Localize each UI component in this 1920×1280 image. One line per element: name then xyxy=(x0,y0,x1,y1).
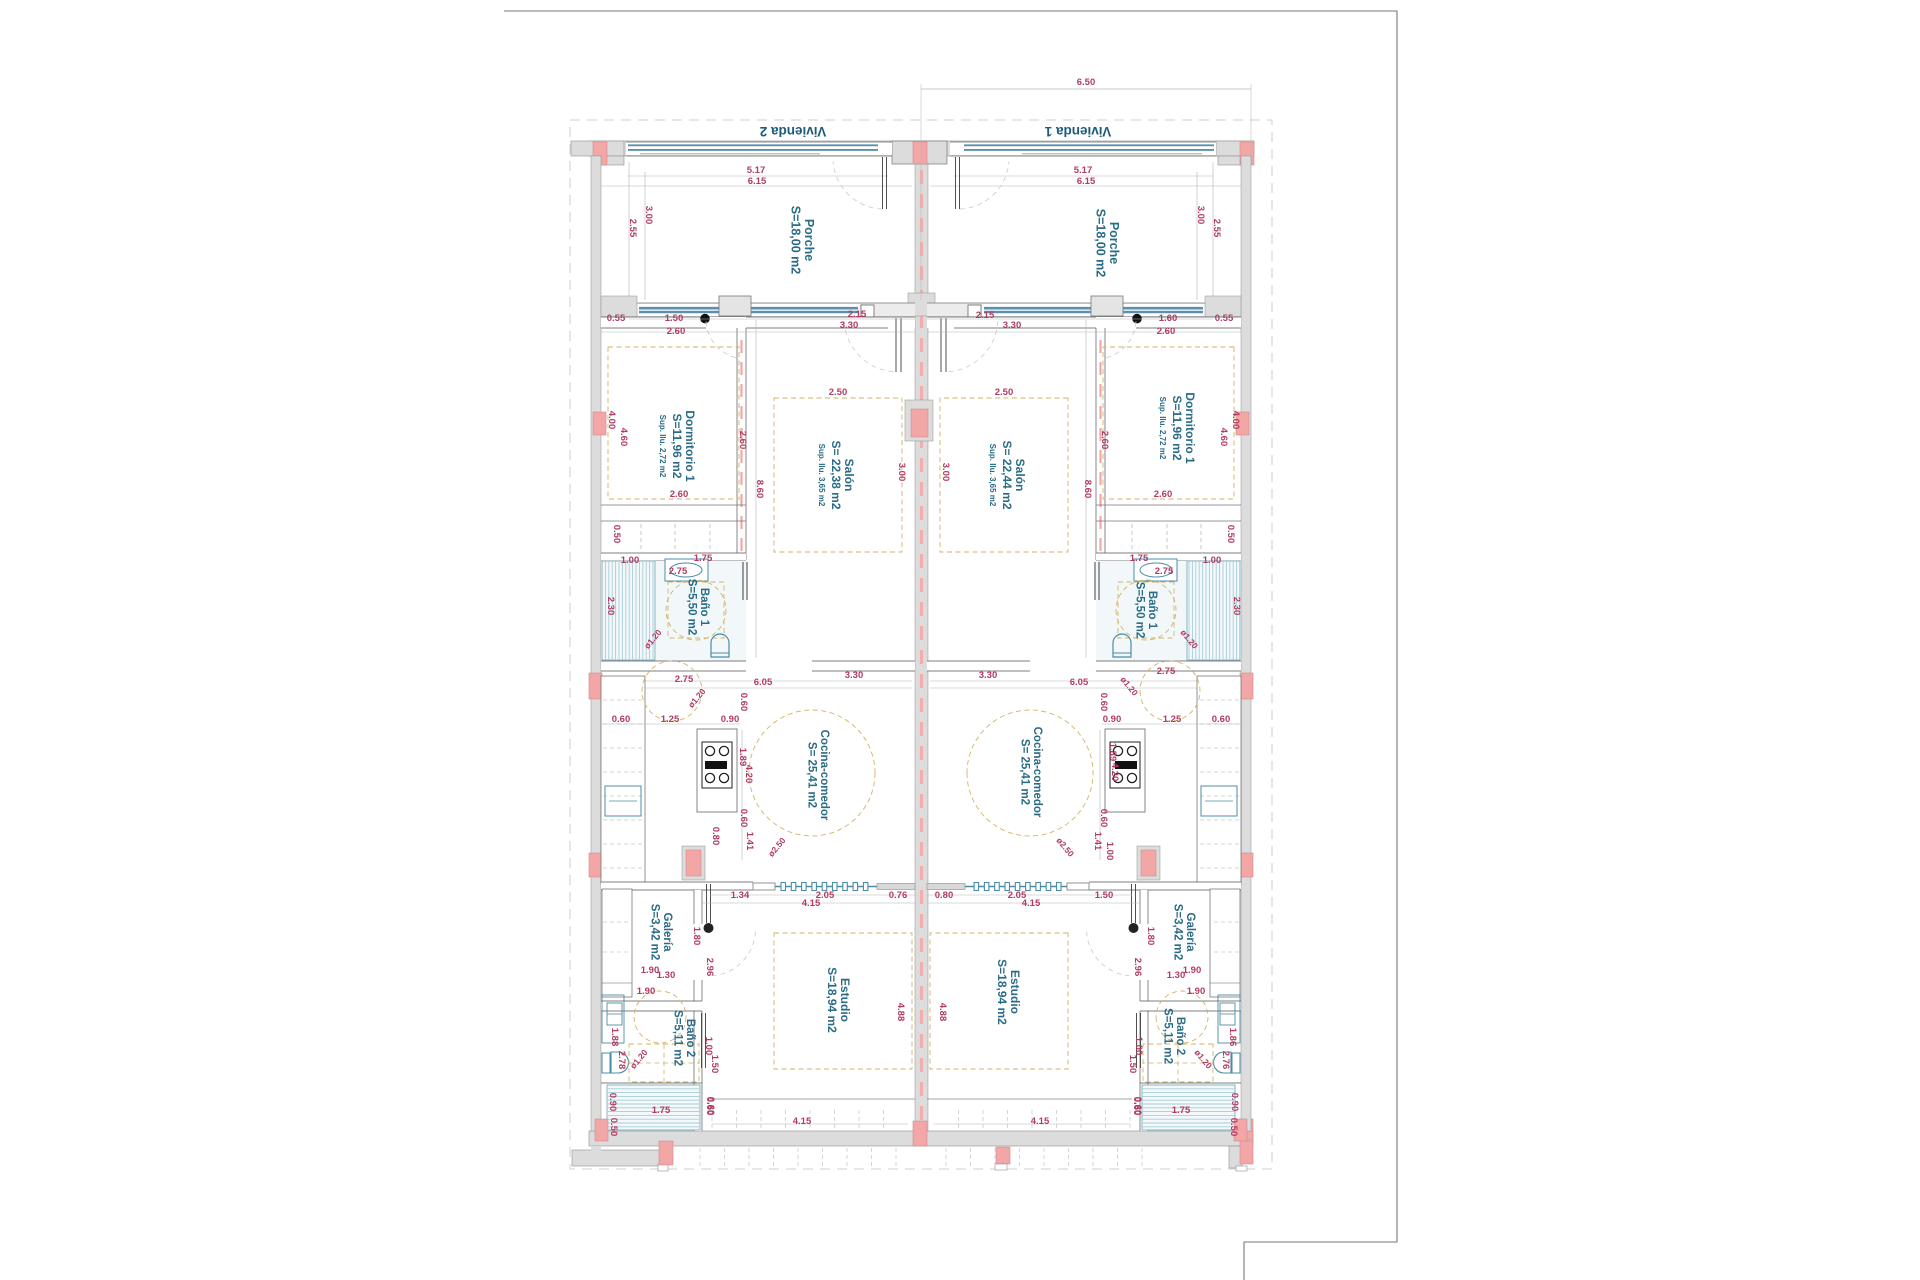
svg-text:4.00: 4.00 xyxy=(606,411,617,430)
svg-text:2.60: 2.60 xyxy=(670,489,689,500)
svg-text:Estudio: Estudio xyxy=(838,978,852,1022)
svg-text:2.75: 2.75 xyxy=(675,674,694,685)
svg-text:3.00: 3.00 xyxy=(896,463,907,482)
svg-text:1.75: 1.75 xyxy=(1172,1105,1191,1116)
svg-text:2.60: 2.60 xyxy=(737,431,748,450)
svg-text:1.25: 1.25 xyxy=(661,714,680,725)
svg-text:2.50: 2.50 xyxy=(995,387,1014,398)
svg-text:8.60: 8.60 xyxy=(1082,480,1093,499)
svg-text:3.00: 3.00 xyxy=(940,463,951,482)
svg-text:S=18,94 m2: S=18,94 m2 xyxy=(825,967,839,1033)
svg-text:5.17: 5.17 xyxy=(747,165,766,176)
svg-text:3.00: 3.00 xyxy=(643,206,654,225)
svg-text:2.75: 2.75 xyxy=(669,566,688,577)
svg-text:1.50: 1.50 xyxy=(709,1055,720,1074)
svg-text:2.96: 2.96 xyxy=(704,958,715,977)
svg-text:Dormitorio 1: Dormitorio 1 xyxy=(1183,392,1197,464)
svg-text:4.60: 4.60 xyxy=(618,428,629,447)
svg-text:0.50: 0.50 xyxy=(608,1118,619,1137)
svg-text:1.60: 1.60 xyxy=(1159,313,1178,324)
svg-text:2.60: 2.60 xyxy=(667,326,686,337)
svg-text:0.60: 0.60 xyxy=(1098,693,1109,712)
svg-text:Baño 2: Baño 2 xyxy=(684,1019,696,1057)
svg-text:Galería: Galería xyxy=(1184,913,1196,953)
svg-text:Galería: Galería xyxy=(661,913,673,953)
svg-text:1.00: 1.00 xyxy=(1133,1037,1144,1056)
svg-text:1.89: 1.89 xyxy=(737,748,748,767)
svg-text:4.15: 4.15 xyxy=(1022,898,1041,909)
svg-text:S= 25,41 m2: S= 25,41 m2 xyxy=(806,742,818,808)
svg-text:3.30: 3.30 xyxy=(1003,320,1022,331)
svg-text:0.50: 0.50 xyxy=(1225,525,1236,544)
svg-text:S=5,50 m2: S=5,50 m2 xyxy=(686,579,698,636)
svg-text:1.75: 1.75 xyxy=(694,553,713,564)
svg-text:1.88: 1.88 xyxy=(609,1028,620,1047)
svg-text:0.90: 0.90 xyxy=(721,714,740,725)
svg-text:4.15: 4.15 xyxy=(802,898,821,909)
svg-text:Cocina-comedor: Cocina-comedor xyxy=(1031,727,1043,818)
svg-text:Cocina-comedor: Cocina-comedor xyxy=(818,730,830,821)
svg-text:0.60: 0.60 xyxy=(1131,1097,1142,1116)
svg-text:4.20: 4.20 xyxy=(743,765,754,784)
svg-text:1.34: 1.34 xyxy=(731,890,750,901)
svg-text:S=18,94 m2: S=18,94 m2 xyxy=(995,959,1009,1025)
svg-text:Baño 1: Baño 1 xyxy=(1146,591,1158,630)
svg-text:0.60: 0.60 xyxy=(1098,809,1109,828)
svg-text:Baño 2: Baño 2 xyxy=(1174,1017,1186,1055)
svg-text:4.88: 4.88 xyxy=(937,1003,948,1022)
svg-text:3.00: 3.00 xyxy=(1195,206,1206,225)
svg-text:0.50: 0.50 xyxy=(1228,1118,1239,1137)
svg-text:S=11,96 m2: S=11,96 m2 xyxy=(1170,395,1184,460)
svg-text:Estudio: Estudio xyxy=(1008,970,1022,1014)
svg-text:S=18,00 m2: S=18,00 m2 xyxy=(1094,209,1108,278)
svg-text:8.60: 8.60 xyxy=(754,480,765,499)
svg-text:0.60: 0.60 xyxy=(705,1097,716,1116)
svg-text:2.60: 2.60 xyxy=(1154,489,1173,500)
svg-text:6.05: 6.05 xyxy=(754,677,773,688)
svg-text:0.80: 0.80 xyxy=(710,827,721,846)
svg-text:2.75: 2.75 xyxy=(1155,566,1174,577)
svg-text:0.55: 0.55 xyxy=(607,313,626,324)
svg-text:1.50: 1.50 xyxy=(665,313,684,324)
svg-text:0.80: 0.80 xyxy=(935,890,954,901)
svg-text:2.78: 2.78 xyxy=(616,1051,627,1070)
svg-text:1.41: 1.41 xyxy=(744,832,755,851)
svg-text:4.88: 4.88 xyxy=(895,1003,906,1022)
svg-text:0.76: 0.76 xyxy=(889,890,908,901)
svg-text:S= 22,38 m2: S= 22,38 m2 xyxy=(829,440,843,509)
svg-text:0.90: 0.90 xyxy=(1229,1093,1240,1112)
svg-text:1.86: 1.86 xyxy=(1227,1028,1238,1047)
svg-text:4.00: 4.00 xyxy=(1230,411,1241,430)
svg-text:2.55: 2.55 xyxy=(1211,219,1222,238)
svg-text:1.75: 1.75 xyxy=(652,1105,671,1116)
svg-text:Sup. Ilu. 2,72 m2: Sup. Ilu. 2,72 m2 xyxy=(658,415,667,478)
svg-text:6.50: 6.50 xyxy=(1077,77,1096,88)
svg-text:Vivienda 1: Vivienda 1 xyxy=(1044,124,1111,139)
svg-text:1.80: 1.80 xyxy=(691,927,702,946)
svg-text:2.50: 2.50 xyxy=(829,387,848,398)
svg-text:Baño 1: Baño 1 xyxy=(698,588,710,627)
svg-text:S=5,11 m2: S=5,11 m2 xyxy=(1162,1008,1174,1064)
svg-text:1.50: 1.50 xyxy=(1095,890,1114,901)
svg-text:2.30: 2.30 xyxy=(1231,597,1242,616)
svg-text:3.30: 3.30 xyxy=(979,670,998,681)
svg-text:4.20: 4.20 xyxy=(1109,763,1120,782)
svg-text:1.00: 1.00 xyxy=(621,555,640,566)
svg-text:S= 22,44 m2: S= 22,44 m2 xyxy=(1000,440,1014,509)
svg-text:Dormitorio 1: Dormitorio 1 xyxy=(683,410,697,482)
svg-text:0.90: 0.90 xyxy=(1103,714,1122,725)
svg-text:0.60: 0.60 xyxy=(612,714,631,725)
svg-text:1.90: 1.90 xyxy=(637,986,656,997)
svg-text:2.15: 2.15 xyxy=(976,310,995,321)
svg-text:1.30: 1.30 xyxy=(657,970,676,981)
svg-text:4.15: 4.15 xyxy=(793,1116,812,1127)
svg-text:S=3,42 m2: S=3,42 m2 xyxy=(1172,904,1184,961)
svg-text:0.60: 0.60 xyxy=(1212,714,1231,725)
svg-text:1.90: 1.90 xyxy=(1183,965,1202,976)
svg-text:Salón: Salón xyxy=(1013,459,1027,492)
svg-text:2.15: 2.15 xyxy=(848,309,867,320)
svg-text:3.30: 3.30 xyxy=(845,670,864,681)
svg-text:0.50: 0.50 xyxy=(611,525,622,544)
svg-text:6.15: 6.15 xyxy=(748,176,767,187)
svg-text:S=5,50 m2: S=5,50 m2 xyxy=(1134,582,1146,639)
svg-text:1.00: 1.00 xyxy=(1104,842,1115,861)
svg-text:0.55: 0.55 xyxy=(1215,313,1234,324)
svg-text:6.05: 6.05 xyxy=(1070,677,1089,688)
svg-text:1.00: 1.00 xyxy=(1203,555,1222,566)
svg-text:Salón: Salón xyxy=(842,459,856,492)
svg-text:1.50: 1.50 xyxy=(1127,1055,1138,1074)
svg-text:2.60: 2.60 xyxy=(1099,431,1110,450)
svg-text:1.00: 1.00 xyxy=(703,1037,714,1056)
svg-text:5.17: 5.17 xyxy=(1074,165,1093,176)
svg-text:S=3,42 m2: S=3,42 m2 xyxy=(649,904,661,961)
svg-text:3.30: 3.30 xyxy=(840,320,859,331)
svg-text:1.41: 1.41 xyxy=(1092,832,1103,851)
svg-text:0.60: 0.60 xyxy=(738,809,749,828)
svg-text:6.15: 6.15 xyxy=(1077,176,1096,187)
svg-text:S=11,96 m2: S=11,96 m2 xyxy=(670,413,684,478)
svg-text:1.89: 1.89 xyxy=(1107,743,1118,762)
svg-text:2.30: 2.30 xyxy=(605,597,616,616)
svg-text:1.30: 1.30 xyxy=(1167,970,1186,981)
svg-text:0.90: 0.90 xyxy=(607,1093,618,1112)
svg-text:2.55: 2.55 xyxy=(627,219,638,238)
svg-text:S= 25,41 m2: S= 25,41 m2 xyxy=(1019,739,1031,805)
svg-text:2.96: 2.96 xyxy=(1132,958,1143,977)
svg-text:0.60: 0.60 xyxy=(738,693,749,712)
svg-text:S=18,00 m2: S=18,00 m2 xyxy=(789,206,803,275)
svg-text:2.76: 2.76 xyxy=(1220,1051,1231,1070)
svg-text:1.75: 1.75 xyxy=(1130,553,1149,564)
svg-text:Vivienda 2: Vivienda 2 xyxy=(760,124,827,139)
svg-text:2.60: 2.60 xyxy=(1157,326,1176,337)
svg-text:S=5,11 m2: S=5,11 m2 xyxy=(672,1010,684,1066)
svg-text:4.60: 4.60 xyxy=(1218,428,1229,447)
svg-text:2.75: 2.75 xyxy=(1157,666,1176,677)
svg-text:Sup. Ilu. 3,65 m2: Sup. Ilu. 3,65 m2 xyxy=(817,444,826,507)
svg-text:4.15: 4.15 xyxy=(1031,1116,1050,1127)
svg-text:Porche: Porche xyxy=(1107,222,1121,264)
svg-text:1.90: 1.90 xyxy=(1187,986,1206,997)
svg-text:Porche: Porche xyxy=(802,219,816,261)
svg-text:Sup. Ilu. 2,72 m2: Sup. Ilu. 2,72 m2 xyxy=(1158,397,1167,460)
svg-text:1.80: 1.80 xyxy=(1145,927,1156,946)
svg-text:1.25: 1.25 xyxy=(1163,714,1182,725)
svg-text:Sup. Ilu. 3,65 m2: Sup. Ilu. 3,65 m2 xyxy=(988,444,997,507)
